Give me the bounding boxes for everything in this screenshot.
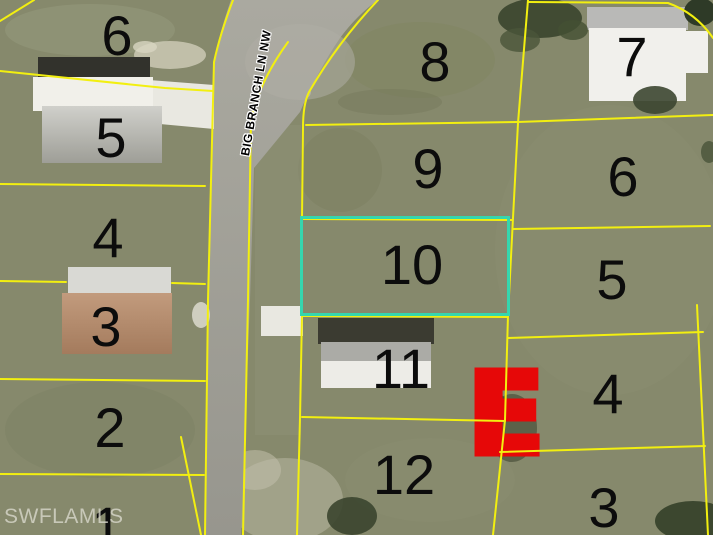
lot-label-west-6: 6 xyxy=(101,8,132,64)
lot-label-east-7: 7 xyxy=(616,29,647,85)
lot-line-bottom-left-diagonal xyxy=(181,437,201,535)
lot-line-bottom-right-diagonal xyxy=(697,305,708,535)
lot-label-middle-8: 8 xyxy=(419,34,450,90)
lot-line-west-4-3b xyxy=(172,283,205,284)
lot-label-east-4: 4 xyxy=(592,366,623,422)
lot-line-west-6-5 xyxy=(0,71,213,91)
watermark: SWFLAMLS xyxy=(4,505,124,529)
lot-label-middle-11: 11 xyxy=(372,341,430,397)
lot-label-west-2: 2 xyxy=(94,400,125,456)
lot-line-east-5-4 xyxy=(508,332,703,338)
lot-line-east-6-5 xyxy=(513,226,710,229)
lot-label-middle-9: 9 xyxy=(412,141,443,197)
lot-label-middle-10: 10 xyxy=(381,237,443,293)
lot-line-8-9 xyxy=(306,115,713,125)
lot-label-west-3: 3 xyxy=(90,299,121,355)
lot-line-top-left-corner xyxy=(0,0,34,21)
lot-label-east-3: 3 xyxy=(588,480,619,535)
lot-label-west-5: 5 xyxy=(95,110,126,166)
lot-line-11-12 xyxy=(302,417,505,421)
lot-line-west-4-3a xyxy=(0,281,66,282)
lot-line-west-5-4 xyxy=(0,184,205,186)
lot-label-east-6: 6 xyxy=(607,149,638,205)
lot-line-west-3-2 xyxy=(0,379,205,381)
lot-label-east-5: 5 xyxy=(596,252,627,308)
lot-label-middle-12: 12 xyxy=(373,447,435,503)
plat-map[interactable]: E BIG BRANCH LN NW 6 5 4 3 2 1 8 9 10 11… xyxy=(0,0,713,535)
lot-line-east-4-3 xyxy=(500,446,705,452)
lot-line-west-2-1 xyxy=(0,474,204,475)
lot-line-10-11 xyxy=(302,316,508,317)
lot-label-west-4: 4 xyxy=(92,210,123,266)
road-line-west xyxy=(205,0,233,535)
